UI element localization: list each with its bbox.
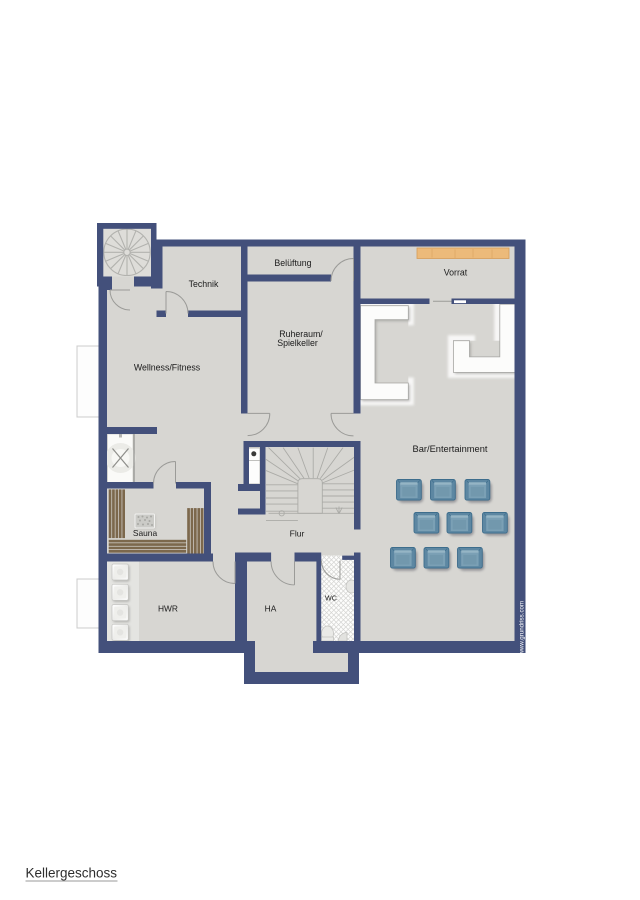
svg-text:Technik: Technik	[189, 279, 219, 289]
svg-text:www.grundriss.com: www.grundriss.com	[519, 601, 526, 656]
svg-text:Sauna: Sauna	[133, 528, 158, 538]
svg-text:HWR: HWR	[158, 604, 178, 614]
svg-text:Belüftung: Belüftung	[274, 258, 311, 268]
svg-text:Spielkeller: Spielkeller	[277, 338, 318, 348]
svg-text:Bar/Entertainment: Bar/Entertainment	[413, 444, 488, 454]
svg-text:Vorrat: Vorrat	[444, 268, 468, 278]
svg-text:Wellness/Fitness: Wellness/Fitness	[134, 363, 201, 373]
svg-text:Flur: Flur	[290, 529, 305, 539]
svg-text:Kellergeschoss: Kellergeschoss	[26, 865, 118, 881]
svg-text:WC: WC	[325, 594, 337, 603]
svg-text:HA: HA	[265, 604, 277, 614]
